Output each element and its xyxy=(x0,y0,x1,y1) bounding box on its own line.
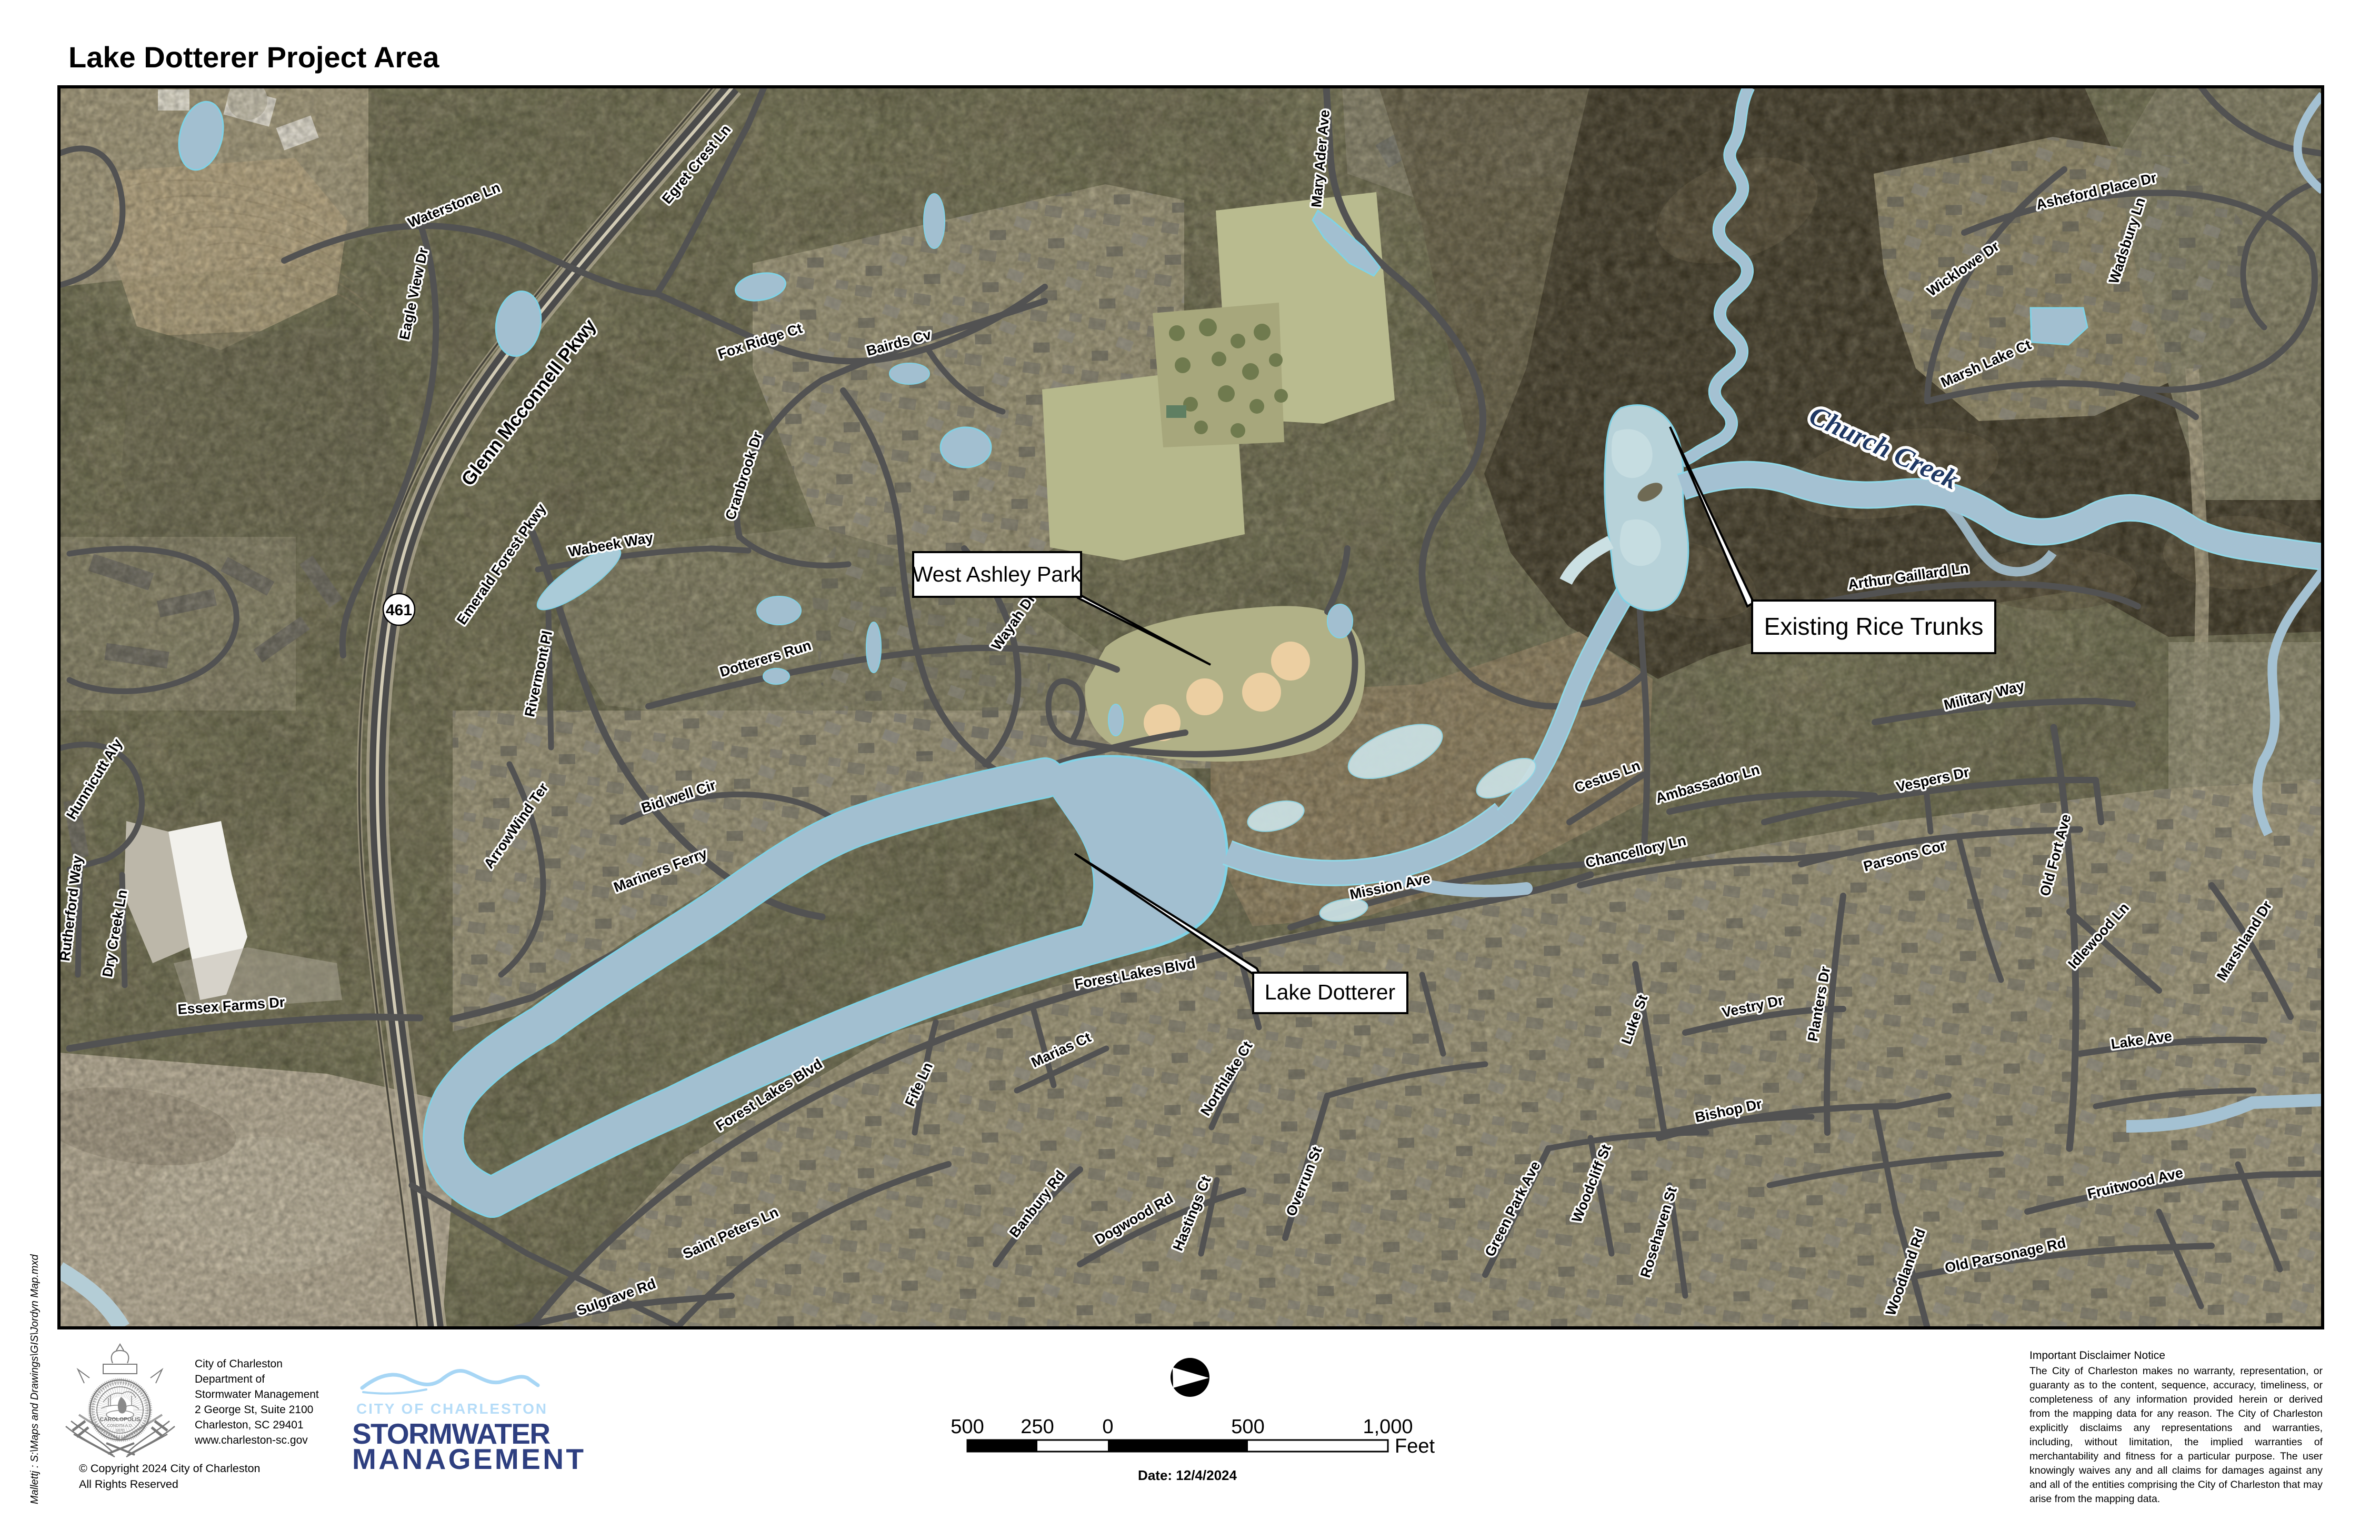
svg-text:All Rights Reserved: All Rights Reserved xyxy=(79,1478,178,1491)
svg-text:1,000: 1,000 xyxy=(1363,1416,1413,1438)
svg-text:City of Charleston: City of Charleston xyxy=(195,1358,283,1370)
svg-text:Lake Dotterer: Lake Dotterer xyxy=(1265,980,1395,1004)
svg-text:© Copyright 2024 City of Charl: © Copyright 2024 City of Charleston xyxy=(79,1462,260,1475)
svg-text:Lake Dotterer Project Area: Lake Dotterer Project Area xyxy=(68,41,439,74)
svg-text:Date: 12/4/2024: Date: 12/4/2024 xyxy=(1138,1467,1237,1483)
svg-text:CONDITA A.D.: CONDITA A.D. xyxy=(107,1423,133,1428)
svg-text:Important Disclaimer Notice: Important Disclaimer Notice xyxy=(2029,1349,2165,1362)
svg-text:Feet: Feet xyxy=(1395,1435,1435,1457)
svg-text:CITY OF CHARLESTON: CITY OF CHARLESTON xyxy=(356,1401,547,1417)
svg-text:500: 500 xyxy=(951,1416,984,1438)
svg-text:250: 250 xyxy=(1021,1416,1054,1438)
svg-text:CAROLOPOLIS: CAROLOPOLIS xyxy=(99,1416,140,1423)
svg-text:www.charleston-sc.gov: www.charleston-sc.gov xyxy=(194,1434,308,1446)
svg-text:Department of: Department of xyxy=(195,1373,265,1385)
svg-text:Charleston, SC 29401: Charleston, SC 29401 xyxy=(195,1419,304,1431)
svg-text:0: 0 xyxy=(1102,1416,1113,1438)
svg-text:1670: 1670 xyxy=(116,1428,125,1433)
svg-text:461: 461 xyxy=(386,602,412,619)
svg-text:2 George St, Suite 2100: 2 George St, Suite 2100 xyxy=(195,1404,313,1416)
svg-text:Existing Rice Trunks: Existing Rice Trunks xyxy=(1764,613,1984,640)
svg-text:Mallettj : S:\Maps and Drawing: Mallettj : S:\Maps and Drawings\GIS\Jord… xyxy=(29,1254,41,1504)
svg-text:500: 500 xyxy=(1231,1416,1264,1438)
svg-text:MANAGEMENT: MANAGEMENT xyxy=(352,1443,584,1475)
svg-text:Stormwater Management: Stormwater Management xyxy=(195,1388,319,1401)
svg-text:West Ashley Park: West Ashley Park xyxy=(913,562,1082,586)
